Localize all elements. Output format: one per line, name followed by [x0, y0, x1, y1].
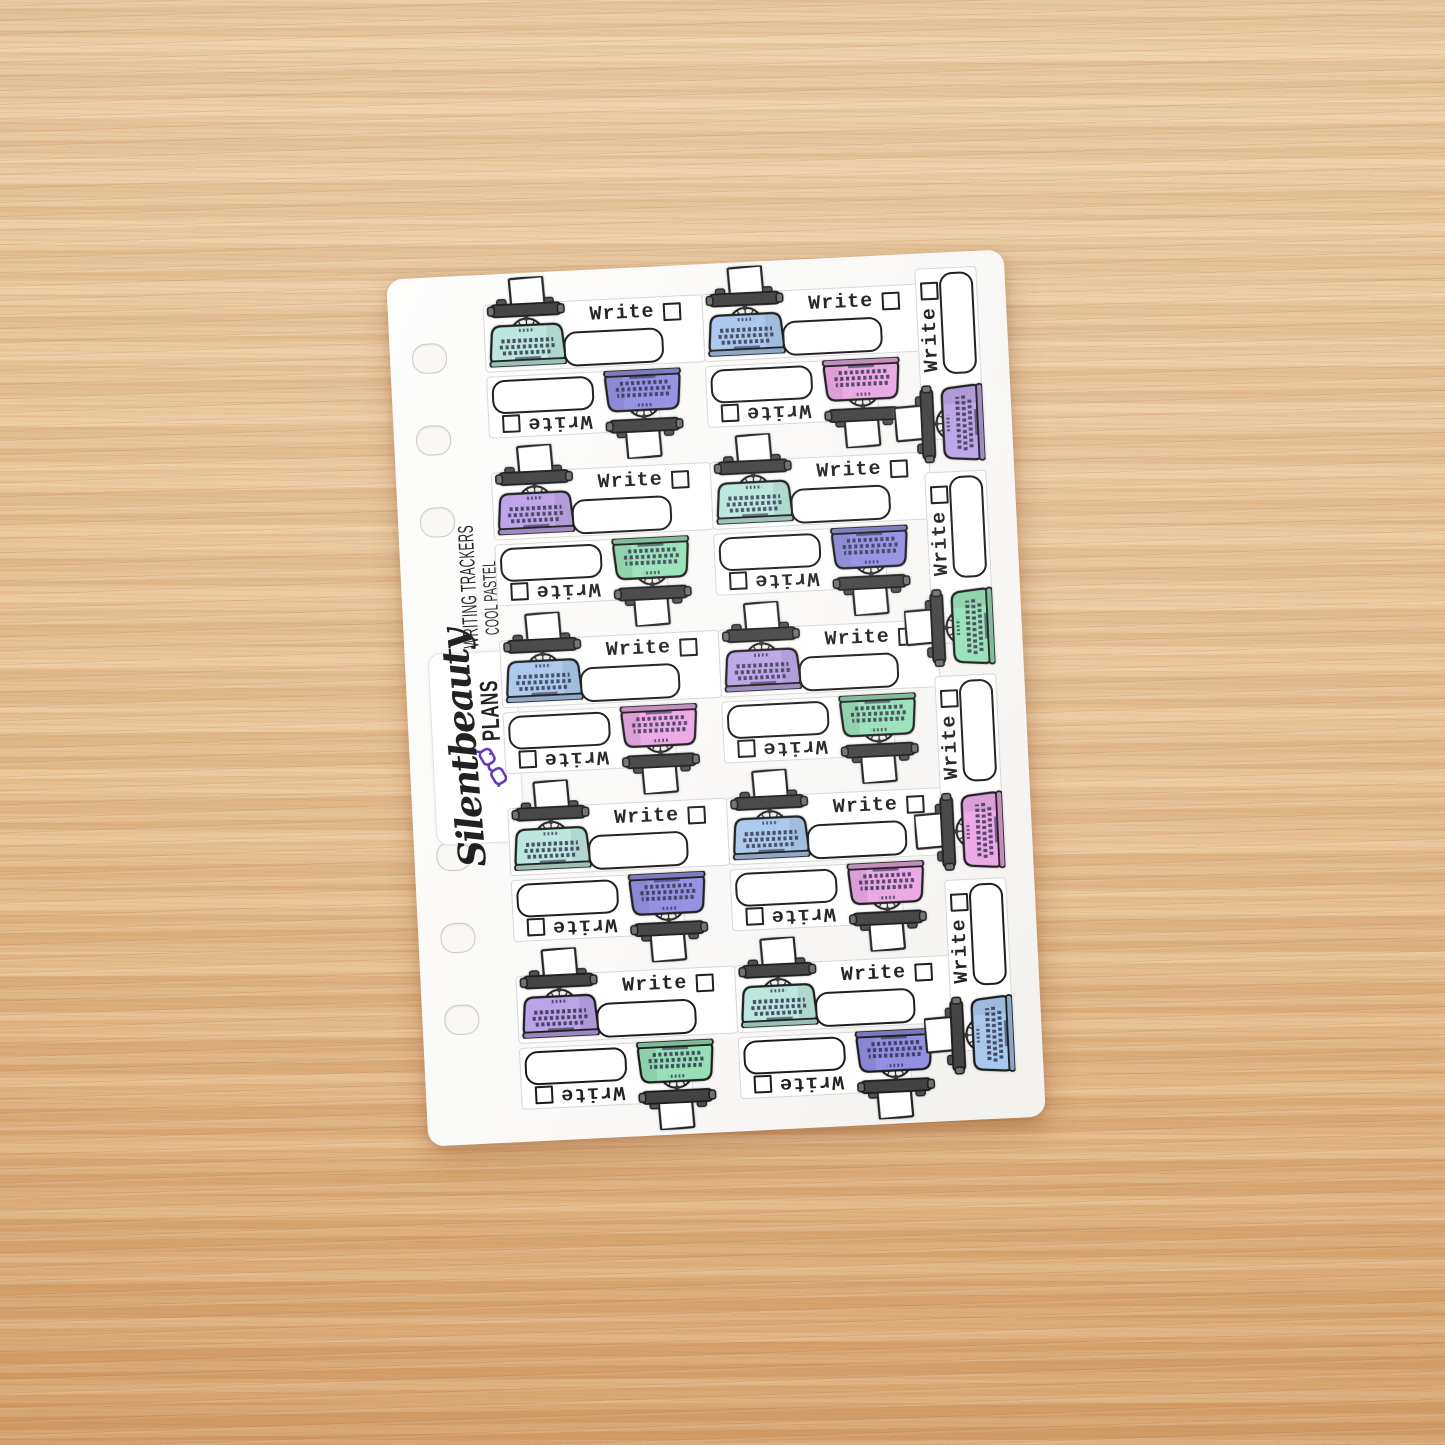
checkbox — [881, 292, 900, 311]
writing-log-box — [596, 998, 698, 1038]
checkbox — [527, 918, 546, 937]
typewriter-icon — [485, 275, 567, 368]
writing-log-box — [815, 988, 917, 1028]
tracker-sticker-upright: Write — [483, 294, 706, 373]
write-label: Write — [606, 638, 672, 661]
writing-log-box — [491, 376, 595, 415]
write-label: Write — [560, 1081, 626, 1104]
checkbox — [502, 414, 521, 433]
tracker-sticker-inverted: Write — [738, 1029, 913, 1099]
punch-hole — [444, 1004, 480, 1036]
checkbox — [695, 973, 714, 992]
writing-log-box — [735, 868, 839, 907]
writing-log-box — [948, 475, 987, 579]
tracker-sticker-inverted: Write — [519, 1040, 694, 1110]
write-label-row: Write — [578, 468, 709, 494]
writing-log-box — [790, 484, 892, 524]
typewriter-icon — [903, 586, 996, 668]
write-label: Write — [833, 795, 899, 818]
checkbox — [721, 404, 740, 423]
typewriter-icon — [603, 367, 685, 460]
write-label-row: Write — [821, 961, 952, 987]
checkbox — [950, 893, 969, 912]
tracker-sticker-inverted: Write — [502, 704, 677, 774]
write-label-row: Write — [603, 972, 734, 998]
tracker-sticker-side: Write — [914, 266, 984, 441]
checkbox — [729, 571, 748, 590]
writing-log-box — [938, 271, 977, 375]
writing-log-box — [571, 495, 673, 535]
write-label-row: Write — [570, 300, 701, 326]
tracker-sticker-upright: Write — [507, 798, 730, 877]
write-label: Write — [527, 410, 593, 433]
typewriter-icon — [628, 871, 710, 964]
checkbox — [535, 1085, 554, 1104]
tracker-sticker-upright: Write — [491, 462, 714, 541]
typewriter-icon — [510, 778, 592, 871]
writing-log-box — [806, 820, 908, 860]
tracker-sticker-inverted: Write — [705, 358, 880, 428]
checkbox — [940, 689, 959, 708]
writing-log-box — [718, 533, 822, 572]
typewriter-icon — [923, 994, 1016, 1076]
typewriter-icon — [729, 768, 811, 861]
punch-hole — [411, 343, 447, 375]
writing-log-box — [516, 879, 620, 918]
tracker-sticker-inverted: Write — [486, 368, 661, 438]
checkbox — [930, 485, 949, 504]
write-label: Write — [622, 974, 688, 997]
writing-log-box — [508, 711, 612, 750]
typewriter-icon — [846, 860, 928, 953]
write-label: Write — [754, 567, 820, 590]
checkbox — [510, 582, 529, 601]
tracker-sticker-side: Write — [924, 470, 994, 645]
typewriter-icon — [913, 790, 1006, 872]
write-label: Write — [841, 963, 907, 986]
writing-log-box — [958, 678, 997, 782]
tracker-sticker-upright: Write — [515, 965, 738, 1044]
tracker-sticker-upright: Write — [499, 630, 722, 709]
typewriter-icon — [704, 264, 786, 357]
punch-hole — [415, 425, 451, 457]
typewriter-icon — [636, 1039, 718, 1132]
write-label: Write — [614, 806, 680, 829]
typewriter-icon — [737, 935, 819, 1028]
typewriter-icon — [712, 432, 794, 525]
writing-log-box — [579, 663, 681, 703]
write-label: Write — [778, 1070, 844, 1093]
tracker-sticker-upright: Write — [701, 283, 924, 362]
writing-log-box — [588, 831, 690, 871]
checkbox — [914, 963, 933, 982]
checkbox — [662, 302, 681, 321]
checkbox — [670, 470, 689, 489]
writing-log-box — [782, 316, 884, 356]
write-label-row: Write — [594, 804, 725, 830]
tracker-sticker-inverted: Write — [494, 536, 669, 606]
checkbox — [737, 739, 756, 758]
write-label: Write — [589, 303, 655, 326]
writing-log-box — [499, 543, 603, 582]
write-label: Write — [535, 578, 601, 601]
writing-log-box — [726, 701, 830, 740]
write-label: Write — [543, 745, 609, 768]
tracker-sticker-inverted: Write — [511, 872, 686, 942]
tracker-sticker-side: Write — [934, 673, 1004, 848]
checkbox — [687, 806, 706, 825]
checkbox — [518, 750, 537, 769]
tracker-sticker-inverted: Write — [729, 861, 904, 931]
checkbox — [753, 1075, 772, 1094]
tracker-sticker-side: Write — [944, 877, 1014, 1052]
write-label-row: Write — [788, 290, 919, 316]
product-photo-scene: WRITING TRACKERS COOL PASTEL Silentbeaut… — [0, 0, 1445, 1445]
checkbox — [745, 907, 764, 926]
typewriter-icon — [518, 946, 600, 1039]
typewriter-icon — [720, 600, 802, 693]
writing-log-box — [798, 652, 900, 692]
write-label: Write — [597, 470, 663, 493]
writing-log-box — [524, 1047, 628, 1086]
write-label: Write — [808, 292, 874, 315]
typewriter-icon — [830, 524, 912, 617]
typewriter-icon — [619, 703, 701, 796]
typewriter-icon — [893, 383, 986, 465]
typewriter-icon — [838, 692, 920, 785]
write-label-row: Write — [586, 636, 717, 662]
write-label: Write — [746, 399, 812, 422]
writing-log-box — [743, 1036, 847, 1075]
punch-hole — [419, 507, 455, 539]
typewriter-icon — [493, 443, 575, 536]
tracker-sticker-inverted: Write — [713, 526, 888, 596]
punch-hole — [440, 922, 476, 954]
write-label: Write — [824, 627, 890, 650]
writing-log-box — [710, 365, 814, 404]
write-label: Write — [762, 735, 828, 758]
sticker-sheet: WRITING TRACKERS COOL PASTEL Silentbeaut… — [386, 249, 1046, 1146]
write-label: Write — [816, 460, 882, 483]
typewriter-icon — [822, 357, 904, 450]
checkbox — [679, 638, 698, 657]
typewriter-icon — [611, 535, 693, 628]
write-label: Write — [770, 902, 836, 925]
writing-log-box — [563, 327, 665, 367]
checkbox — [920, 282, 939, 301]
tracker-sticker-inverted: Write — [721, 693, 896, 763]
writing-log-box — [968, 882, 1007, 986]
typewriter-icon — [502, 611, 584, 704]
write-label: Write — [551, 913, 617, 936]
